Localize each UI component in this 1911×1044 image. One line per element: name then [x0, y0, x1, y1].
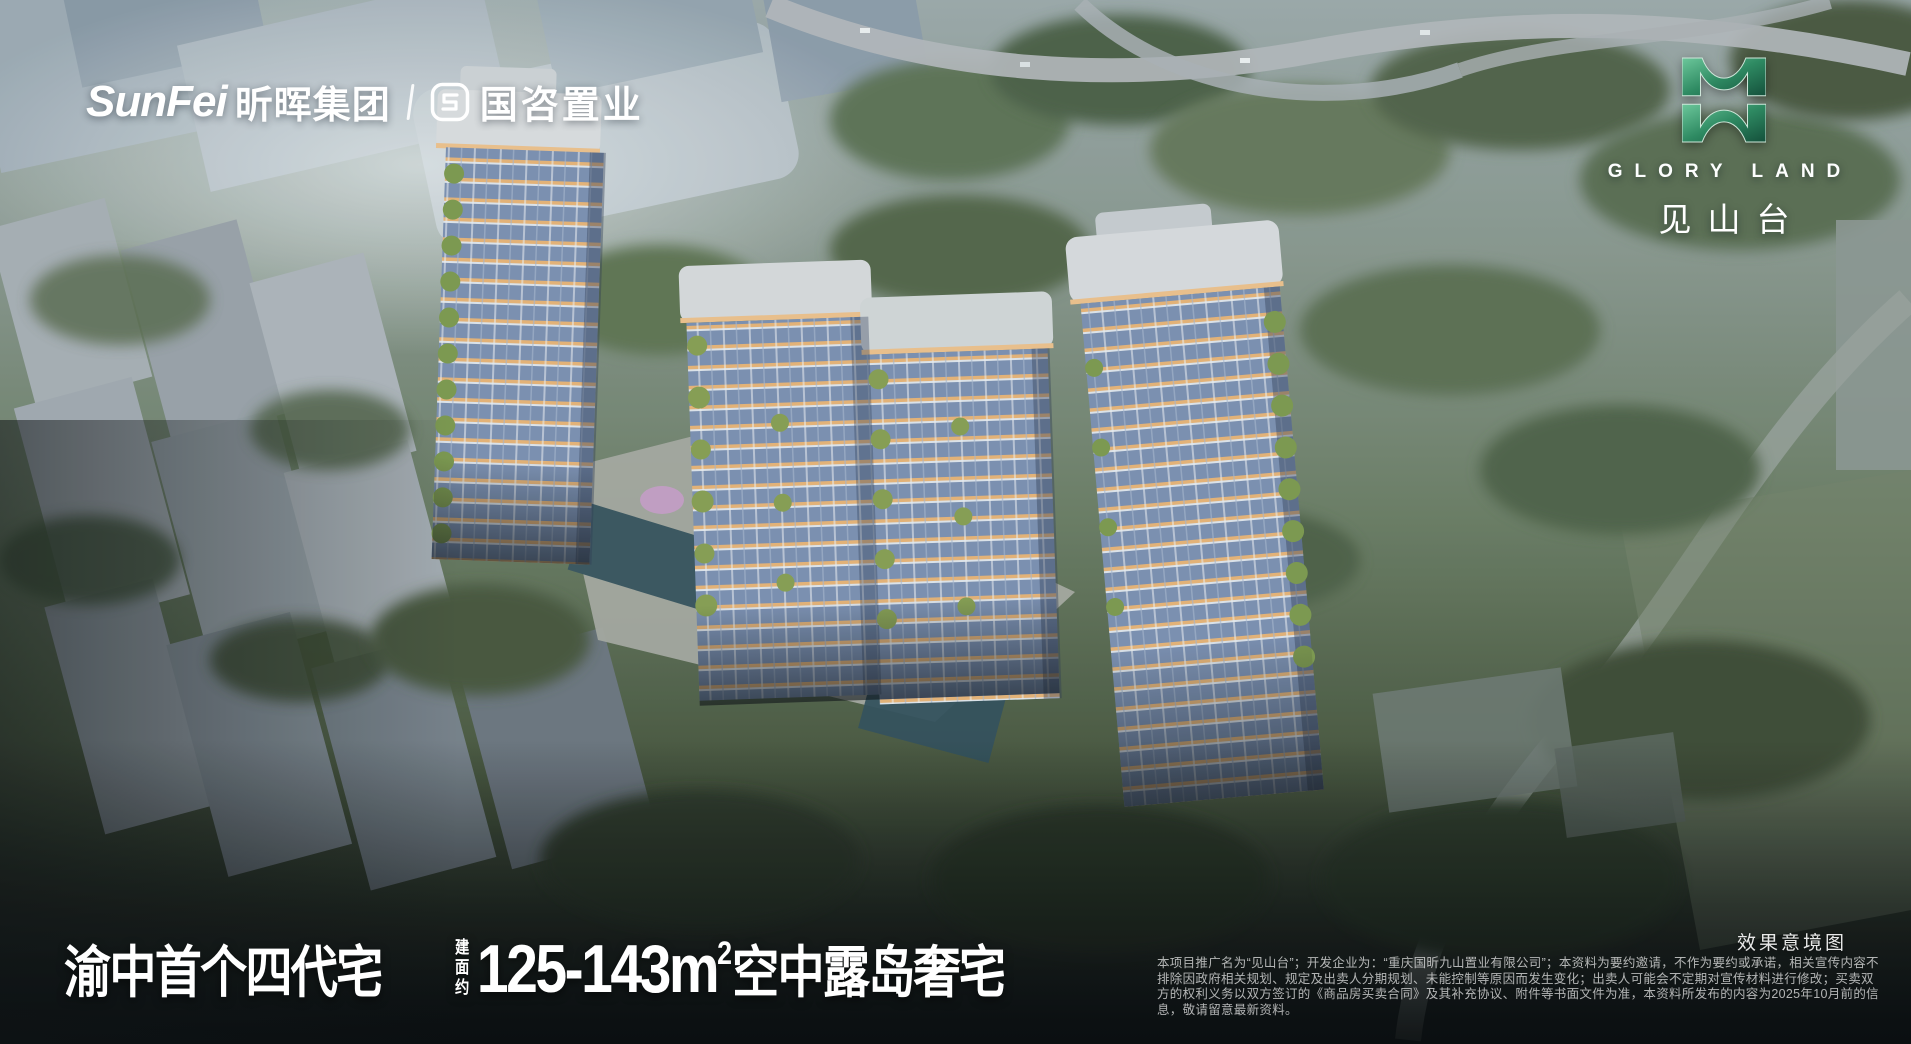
headline-area-label: 建面约 — [452, 938, 468, 1000]
headline-area-sup: 2 — [717, 935, 732, 971]
render-caption: 效果意境图 — [1737, 928, 1847, 955]
headline-suffix: 空中露岛奢宅 — [732, 928, 1004, 1009]
gloryland-logo-mark-icon — [1682, 56, 1766, 144]
headline-prefix: 渝中首个四代宅 — [64, 928, 382, 1009]
developer-logos: SunFei 昕晖集团 国咨置业 — [86, 74, 644, 129]
headline: 渝中首个四代宅 建面约 125-143m2 空中露岛奢宅 — [64, 928, 1004, 1009]
guozi-logo-icon — [430, 82, 470, 122]
legal-disclaimer: 本项目推广名为“见山台”；开发企业为：“重庆国昕九山置业有限公司”；本资料为要约… — [1157, 956, 1883, 1018]
headline-area-value: 125-143m2 — [477, 930, 732, 1008]
sunfei-logo-latin: SunFei — [86, 77, 227, 127]
project-logo: GLORY LAND 见山台 — [1593, 56, 1855, 241]
project-logo-latin: GLORY LAND — [1593, 161, 1855, 183]
sunfei-logo-cn: 昕晖集团 — [235, 74, 391, 129]
project-logo-cn: 见山台 — [1593, 193, 1855, 241]
real-estate-poster: SunFei 昕晖集团 国咨置业 GLORY LAND 见山台 — [0, 0, 1911, 1044]
logo-divider — [406, 84, 414, 120]
guozi-logo-cn: 国咨置业 — [480, 74, 644, 129]
